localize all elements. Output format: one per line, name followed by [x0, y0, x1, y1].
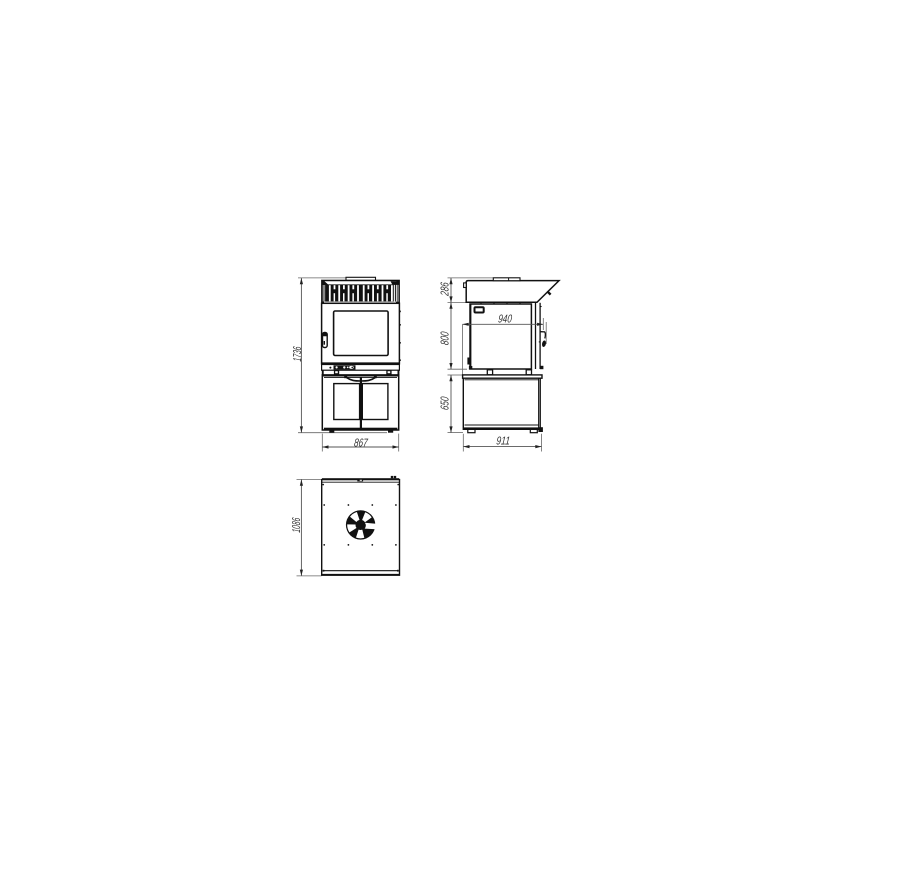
svg-text:940: 940 [498, 314, 513, 326]
svg-text:867: 867 [353, 437, 368, 449]
svg-text:650: 650 [440, 396, 452, 411]
svg-text:800: 800 [440, 331, 452, 346]
svg-text:286: 286 [440, 281, 452, 297]
svg-text:1086: 1086 [291, 517, 303, 533]
svg-text:1736: 1736 [292, 346, 304, 362]
svg-text:911: 911 [496, 436, 511, 448]
